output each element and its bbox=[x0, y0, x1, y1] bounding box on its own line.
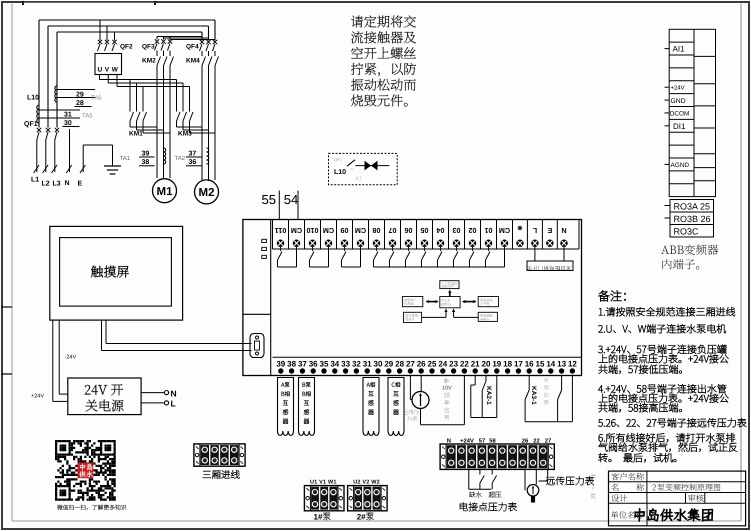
svg-text:23: 23 bbox=[449, 360, 458, 369]
svg-text:QF2: QF2 bbox=[120, 44, 133, 51]
svg-text:39: 39 bbox=[276, 360, 285, 369]
svg-text:17: 17 bbox=[514, 360, 523, 369]
svg-text:31: 31 bbox=[363, 360, 372, 369]
svg-text:+24V: +24V bbox=[31, 393, 44, 399]
svg-text:U2 V2 W2: U2 V2 W2 bbox=[353, 480, 380, 486]
svg-text:37: 37 bbox=[298, 360, 307, 369]
svg-text:RO3A 25: RO3A 25 bbox=[674, 202, 711, 212]
svg-text:-24V: -24V bbox=[65, 355, 77, 361]
svg-text:N: N bbox=[561, 226, 566, 235]
svg-text:55: 55 bbox=[262, 192, 276, 207]
svg-text:L2: L2 bbox=[42, 181, 50, 188]
svg-text:QF1: QF1 bbox=[24, 121, 38, 128]
svg-text:N: N bbox=[65, 180, 70, 187]
svg-text:CM: CM bbox=[323, 226, 334, 235]
svg-text:30: 30 bbox=[374, 360, 383, 369]
svg-text:DCOM: DCOM bbox=[670, 111, 690, 118]
svg-text:GND: GND bbox=[671, 98, 686, 105]
svg-text:N: N bbox=[447, 438, 451, 444]
svg-text:E: E bbox=[78, 181, 83, 188]
svg-text:+24V: +24V bbox=[671, 85, 685, 92]
svg-text:22: 22 bbox=[460, 360, 469, 369]
svg-text:010: 010 bbox=[307, 226, 319, 235]
svg-text:13: 13 bbox=[557, 360, 566, 369]
svg-text:N: N bbox=[171, 388, 177, 398]
svg-text:36: 36 bbox=[309, 360, 318, 369]
svg-text:CM: CM bbox=[355, 226, 366, 235]
svg-text:+24V: +24V bbox=[460, 437, 474, 444]
svg-text:KM3: KM3 bbox=[178, 131, 192, 138]
svg-text:57: 57 bbox=[479, 438, 485, 444]
svg-text:L1: L1 bbox=[31, 177, 39, 184]
svg-text:29: 29 bbox=[76, 92, 84, 99]
svg-text:10V: 10V bbox=[442, 386, 452, 392]
svg-text:07: 07 bbox=[389, 226, 397, 235]
svg-text:L10: L10 bbox=[334, 169, 346, 176]
svg-text:QF7: QF7 bbox=[334, 157, 343, 162]
svg-text:27: 27 bbox=[406, 360, 415, 369]
svg-text:37: 37 bbox=[189, 151, 197, 158]
svg-text:QF4: QF4 bbox=[186, 44, 199, 51]
svg-text:M1: M1 bbox=[157, 186, 174, 198]
svg-text:28: 28 bbox=[395, 360, 404, 369]
svg-text:04: 04 bbox=[437, 226, 445, 235]
svg-text:32: 32 bbox=[352, 360, 361, 369]
svg-text:AGND: AGND bbox=[671, 162, 690, 169]
svg-text:38: 38 bbox=[142, 159, 150, 166]
svg-text:19: 19 bbox=[492, 360, 501, 369]
svg-text:L3: L3 bbox=[53, 181, 61, 188]
svg-text:CM: CM bbox=[499, 226, 510, 235]
svg-text:U1 V1 W1: U1 V1 W1 bbox=[310, 480, 337, 486]
svg-text:L10: L10 bbox=[27, 95, 39, 102]
svg-text:RO3B 26: RO3B 26 bbox=[674, 214, 711, 224]
svg-text:U V W: U V W bbox=[98, 67, 119, 74]
svg-text:TA5: TA5 bbox=[82, 113, 93, 120]
svg-text:12: 12 bbox=[568, 360, 577, 369]
svg-text:34: 34 bbox=[330, 360, 339, 369]
svg-text:24: 24 bbox=[438, 360, 447, 369]
svg-text:01: 01 bbox=[485, 226, 493, 235]
svg-text:38: 38 bbox=[287, 360, 296, 369]
svg-text:26: 26 bbox=[522, 437, 529, 444]
svg-text:011: 011 bbox=[275, 226, 287, 235]
svg-text:31: 31 bbox=[64, 112, 72, 119]
svg-text:CM: CM bbox=[291, 226, 302, 235]
svg-text:KA2-1: KA2-1 bbox=[485, 386, 492, 405]
svg-text:05: 05 bbox=[421, 226, 429, 235]
svg-text:22: 22 bbox=[533, 437, 539, 444]
svg-text:35: 35 bbox=[320, 360, 329, 369]
svg-text:TA6: TA6 bbox=[91, 95, 102, 102]
svg-text:L: L bbox=[171, 399, 176, 409]
svg-text:14: 14 bbox=[546, 360, 555, 369]
svg-text:33: 33 bbox=[341, 360, 350, 369]
svg-text:02: 02 bbox=[469, 226, 477, 235]
svg-text:09: 09 bbox=[341, 226, 349, 235]
svg-text:36: 36 bbox=[189, 159, 197, 166]
svg-text:03: 03 bbox=[453, 226, 461, 235]
svg-text:DI1: DI1 bbox=[673, 122, 686, 131]
svg-text:27: 27 bbox=[545, 437, 551, 444]
svg-text:16: 16 bbox=[525, 360, 534, 369]
svg-text:E: E bbox=[547, 226, 552, 235]
svg-text:18: 18 bbox=[503, 360, 512, 369]
svg-text:29: 29 bbox=[384, 360, 393, 369]
svg-text:25: 25 bbox=[428, 360, 437, 369]
svg-text:20: 20 bbox=[482, 360, 491, 369]
svg-text:2#: 2# bbox=[357, 513, 366, 522]
svg-text:KM1: KM1 bbox=[129, 131, 143, 138]
svg-text:39: 39 bbox=[142, 151, 150, 158]
svg-text:L: L bbox=[532, 226, 537, 235]
svg-text:QF3: QF3 bbox=[142, 44, 155, 51]
svg-text:1#: 1# bbox=[314, 513, 323, 522]
svg-text:54: 54 bbox=[284, 192, 298, 207]
svg-text:AI1: AI1 bbox=[673, 45, 686, 54]
svg-text:KM2: KM2 bbox=[142, 58, 156, 65]
svg-text:0-: 0- bbox=[444, 379, 449, 385]
svg-text:77: 77 bbox=[350, 168, 354, 172]
svg-text:06: 06 bbox=[405, 226, 413, 235]
svg-text:KA3-1: KA3-1 bbox=[530, 386, 537, 405]
svg-text:TA1: TA1 bbox=[120, 155, 131, 162]
svg-text:58: 58 bbox=[489, 437, 496, 444]
svg-text:TA2: TA2 bbox=[175, 155, 186, 162]
svg-text:KM4: KM4 bbox=[186, 58, 200, 65]
svg-text:28: 28 bbox=[76, 100, 84, 107]
svg-text:RO3C: RO3C bbox=[674, 227, 700, 237]
svg-text:26: 26 bbox=[417, 360, 426, 369]
svg-text:JL7: JL7 bbox=[355, 176, 362, 181]
svg-text:21: 21 bbox=[471, 360, 480, 369]
svg-text:30: 30 bbox=[64, 120, 72, 127]
svg-text:M2: M2 bbox=[199, 187, 215, 199]
svg-text:15: 15 bbox=[536, 360, 545, 369]
svg-text:08: 08 bbox=[373, 226, 381, 235]
